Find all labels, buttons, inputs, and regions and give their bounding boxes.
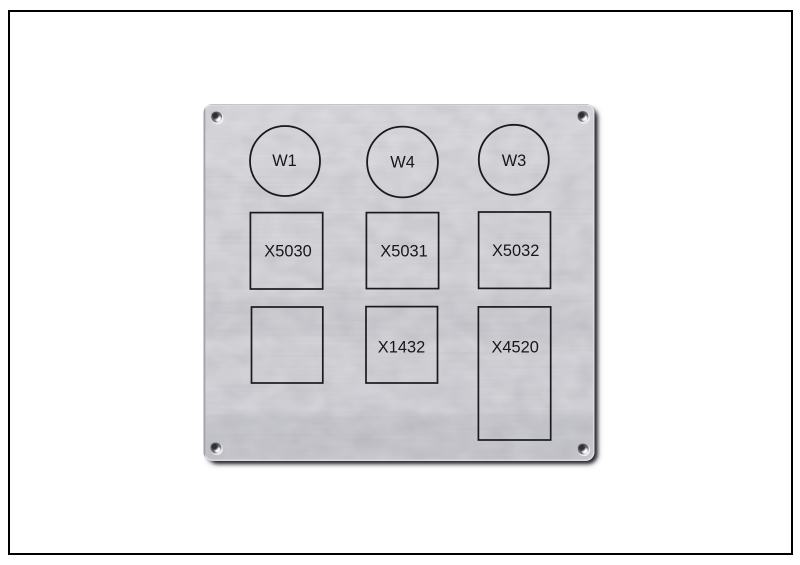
svg-text:X1432: X1432: [378, 338, 425, 356]
svg-text:X5032: X5032: [492, 242, 539, 260]
svg-text:W4: W4: [390, 153, 415, 171]
svg-text:X5030: X5030: [264, 242, 311, 260]
svg-text:X4520: X4520: [491, 338, 538, 356]
svg-text:X5031: X5031: [380, 242, 427, 260]
svg-text:W1: W1: [272, 152, 297, 170]
svg-text:W3: W3: [502, 152, 527, 170]
